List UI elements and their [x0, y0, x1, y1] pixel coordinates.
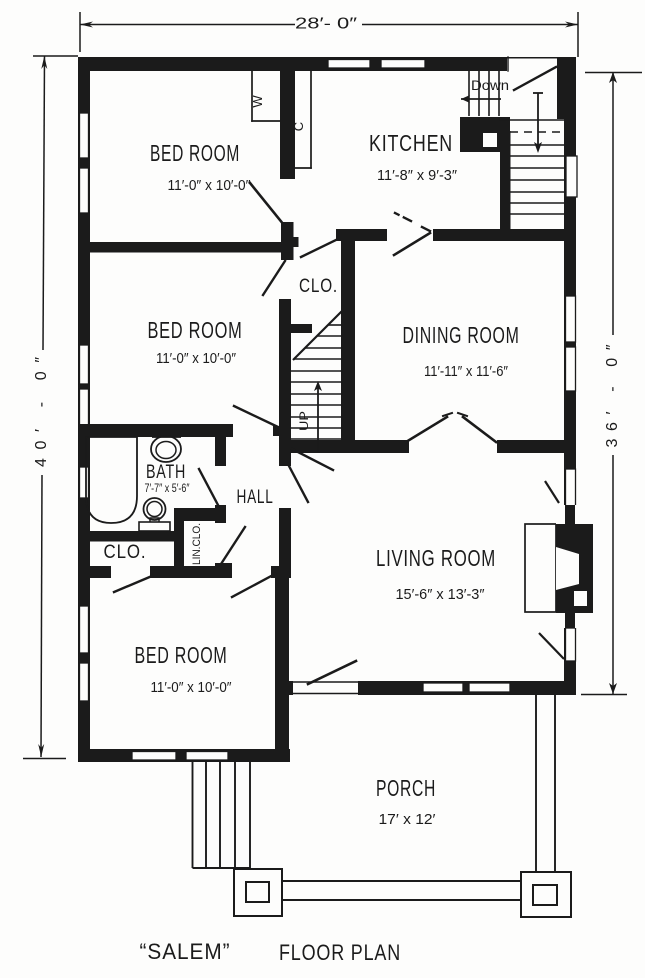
svg-text:FLOOR PLAN: FLOOR PLAN — [279, 940, 401, 965]
svg-text:PORCH: PORCH — [376, 775, 436, 801]
svg-text:LIVING ROOM: LIVING ROOM — [376, 545, 496, 571]
svg-text:7′-7″ x 5′-6″: 7′-7″ x 5′-6″ — [145, 483, 190, 495]
svg-text:BED ROOM: BED ROOM — [148, 317, 243, 343]
svg-text:BED ROOM: BED ROOM — [135, 642, 228, 668]
svg-text:17′ x 12′: 17′ x 12′ — [379, 812, 436, 828]
svg-text:11′-0″ x 10′-0″: 11′-0″ x 10′-0″ — [156, 351, 236, 367]
svg-text:11′-0″ x 10′-0″: 11′-0″ x 10′-0″ — [151, 680, 232, 696]
svg-text:11′-0″ x 10′-0″: 11′-0″ x 10′-0″ — [168, 178, 251, 194]
svg-text:LIN.CLO.: LIN.CLO. — [191, 523, 203, 565]
svg-text:BATH: BATH — [146, 462, 186, 483]
svg-text:“SALEM”: “SALEM” — [140, 939, 231, 964]
svg-text:CLO.: CLO. — [104, 542, 147, 563]
svg-text:11′-11″ x 11′-6″: 11′-11″ x 11′-6″ — [424, 364, 508, 380]
svg-text:Down: Down — [471, 78, 509, 93]
svg-text:UP: UP — [297, 411, 311, 431]
svg-text:W: W — [250, 94, 265, 107]
svg-text:DINING ROOM: DINING ROOM — [403, 322, 520, 348]
svg-text:CLO.: CLO. — [299, 276, 338, 297]
svg-text:BED ROOM: BED ROOM — [150, 140, 240, 166]
svg-text:C: C — [291, 121, 306, 131]
svg-text:28′- 0″: 28′- 0″ — [295, 16, 357, 33]
svg-text:15′-6″ x 13′-3″: 15′-6″ x 13′-3″ — [396, 587, 485, 603]
svg-text:HALL: HALL — [237, 487, 274, 508]
svg-text:11′-8″ x 9′-3″: 11′-8″ x 9′-3″ — [377, 168, 457, 184]
svg-text:KITCHEN: KITCHEN — [369, 130, 453, 156]
